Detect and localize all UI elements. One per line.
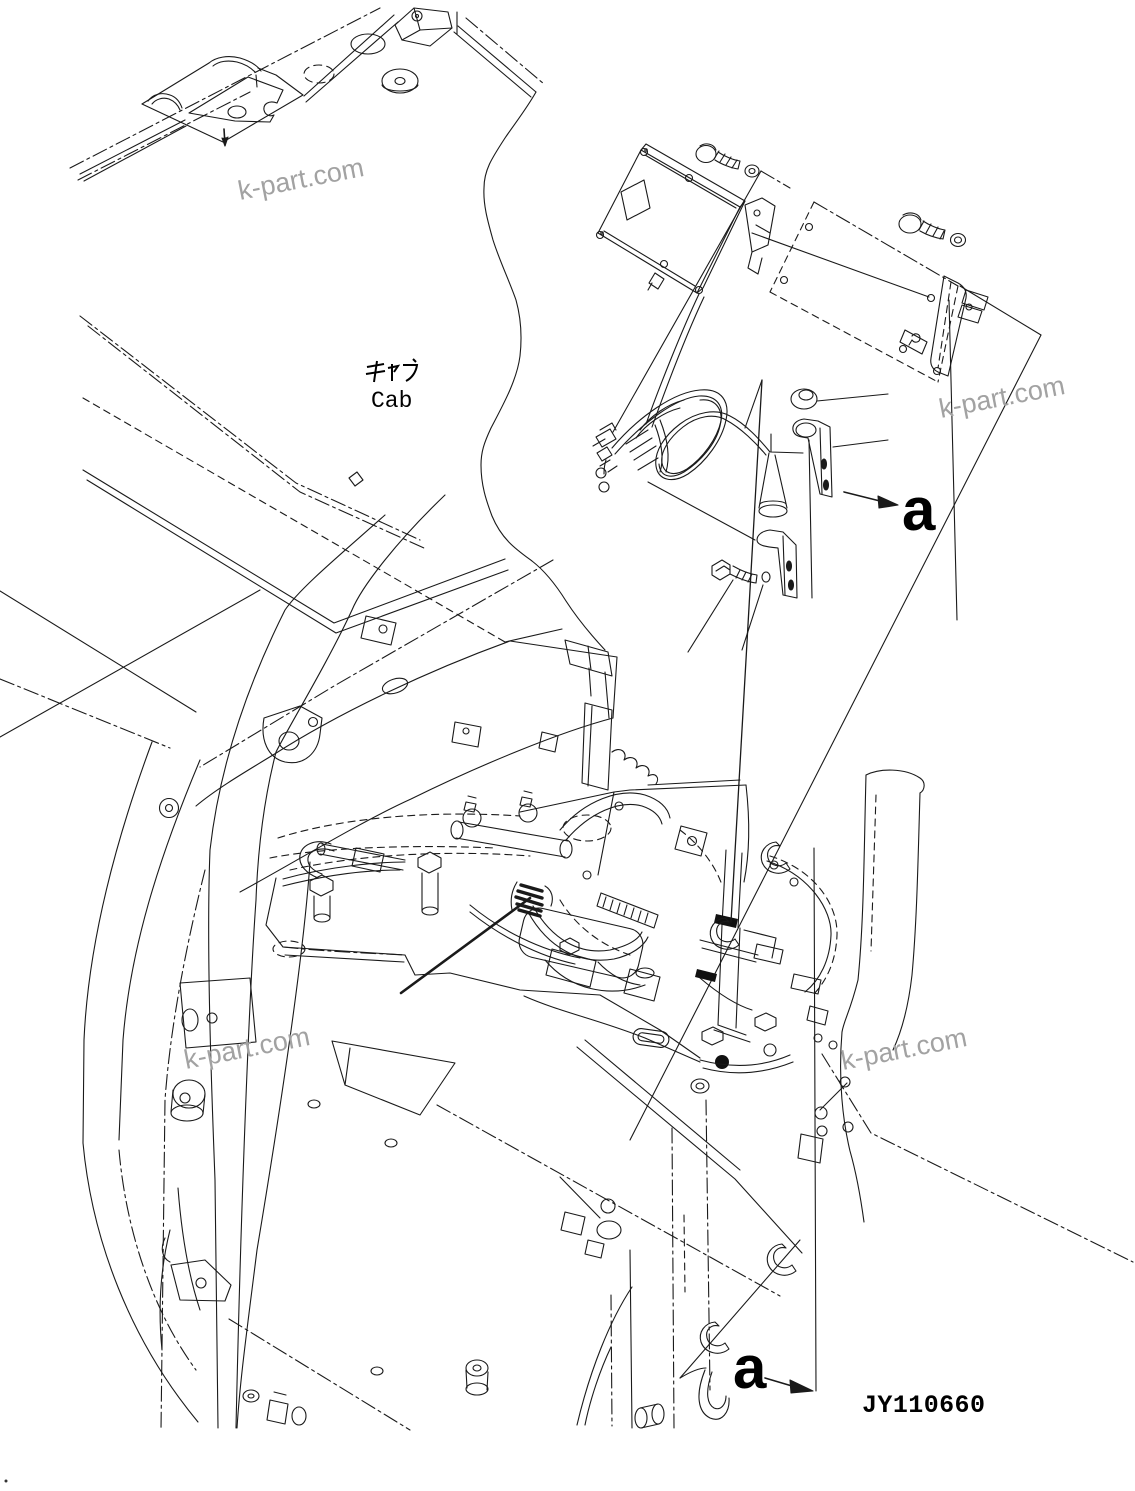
- svg-text:k-part.com: k-part.com: [936, 370, 1067, 424]
- svg-text:k-part.com: k-part.com: [838, 1022, 969, 1076]
- svg-text:a: a: [733, 1334, 767, 1401]
- svg-text:JY110660: JY110660: [862, 1391, 985, 1420]
- svg-text:a: a: [902, 476, 936, 543]
- svg-text:Cab: Cab: [371, 388, 412, 414]
- svg-text:k-part.com: k-part.com: [235, 152, 366, 206]
